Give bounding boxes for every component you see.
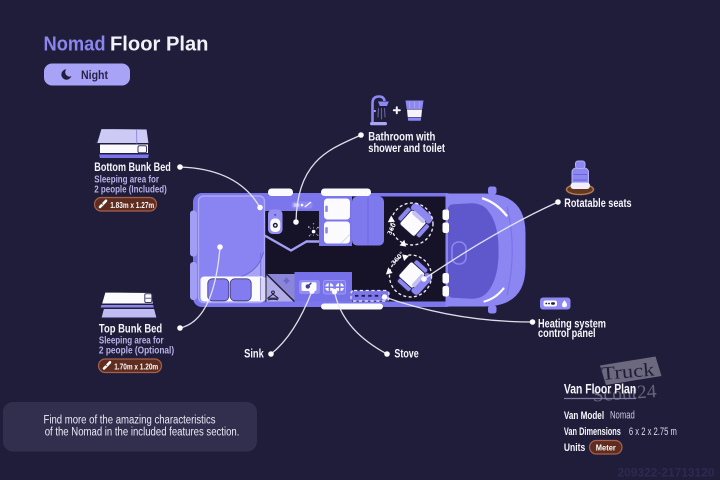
svg-text:Van Dimensions: Van Dimensions — [564, 426, 621, 438]
svg-text:Bottom Bunk Bed: Bottom Bunk Bed — [94, 162, 171, 174]
svg-text:Van Floor Plan: Van Floor Plan — [564, 382, 636, 397]
svg-text:of the Nomad in the included f: of the Nomad in the included features se… — [45, 427, 240, 439]
svg-text:Van Model: Van Model — [564, 410, 604, 422]
svg-text:Meter: Meter — [596, 442, 617, 452]
svg-text:Stove: Stove — [394, 346, 419, 360]
svg-text:Nomad: Nomad — [44, 34, 106, 56]
svg-text:Top Bunk Bed: Top Bunk Bed — [99, 324, 162, 336]
svg-text:Night: Night — [81, 68, 108, 82]
svg-text:Bathroom with: Bathroom with — [368, 132, 435, 144]
svg-text:1.83m x 1.27m: 1.83m x 1.27m — [110, 200, 154, 210]
svg-text:Find more of the amazing chara: Find more of the amazing characteristics — [44, 415, 216, 427]
svg-text:2 people (Optional): 2 people (Optional) — [99, 345, 174, 356]
svg-text:2 people (Included): 2 people (Included) — [94, 184, 167, 195]
svg-text:Floor Plan: Floor Plan — [110, 34, 209, 56]
svg-text:Sink: Sink — [244, 346, 264, 360]
svg-text:Nomad: Nomad — [610, 410, 635, 422]
svg-text:1.70m x 1.20m: 1.70m x 1.20m — [114, 362, 158, 372]
svg-text:Rotatable seats: Rotatable seats — [564, 198, 631, 210]
svg-text:209322-21713120: 209322-21713120 — [618, 466, 715, 480]
svg-text:Units: Units — [564, 442, 585, 454]
svg-text:6 x 2 x 2.75 m: 6 x 2 x 2.75 m — [629, 426, 677, 438]
svg-text:shower and toilet: shower and toilet — [368, 143, 445, 155]
svg-text:control panel: control panel — [538, 328, 596, 340]
